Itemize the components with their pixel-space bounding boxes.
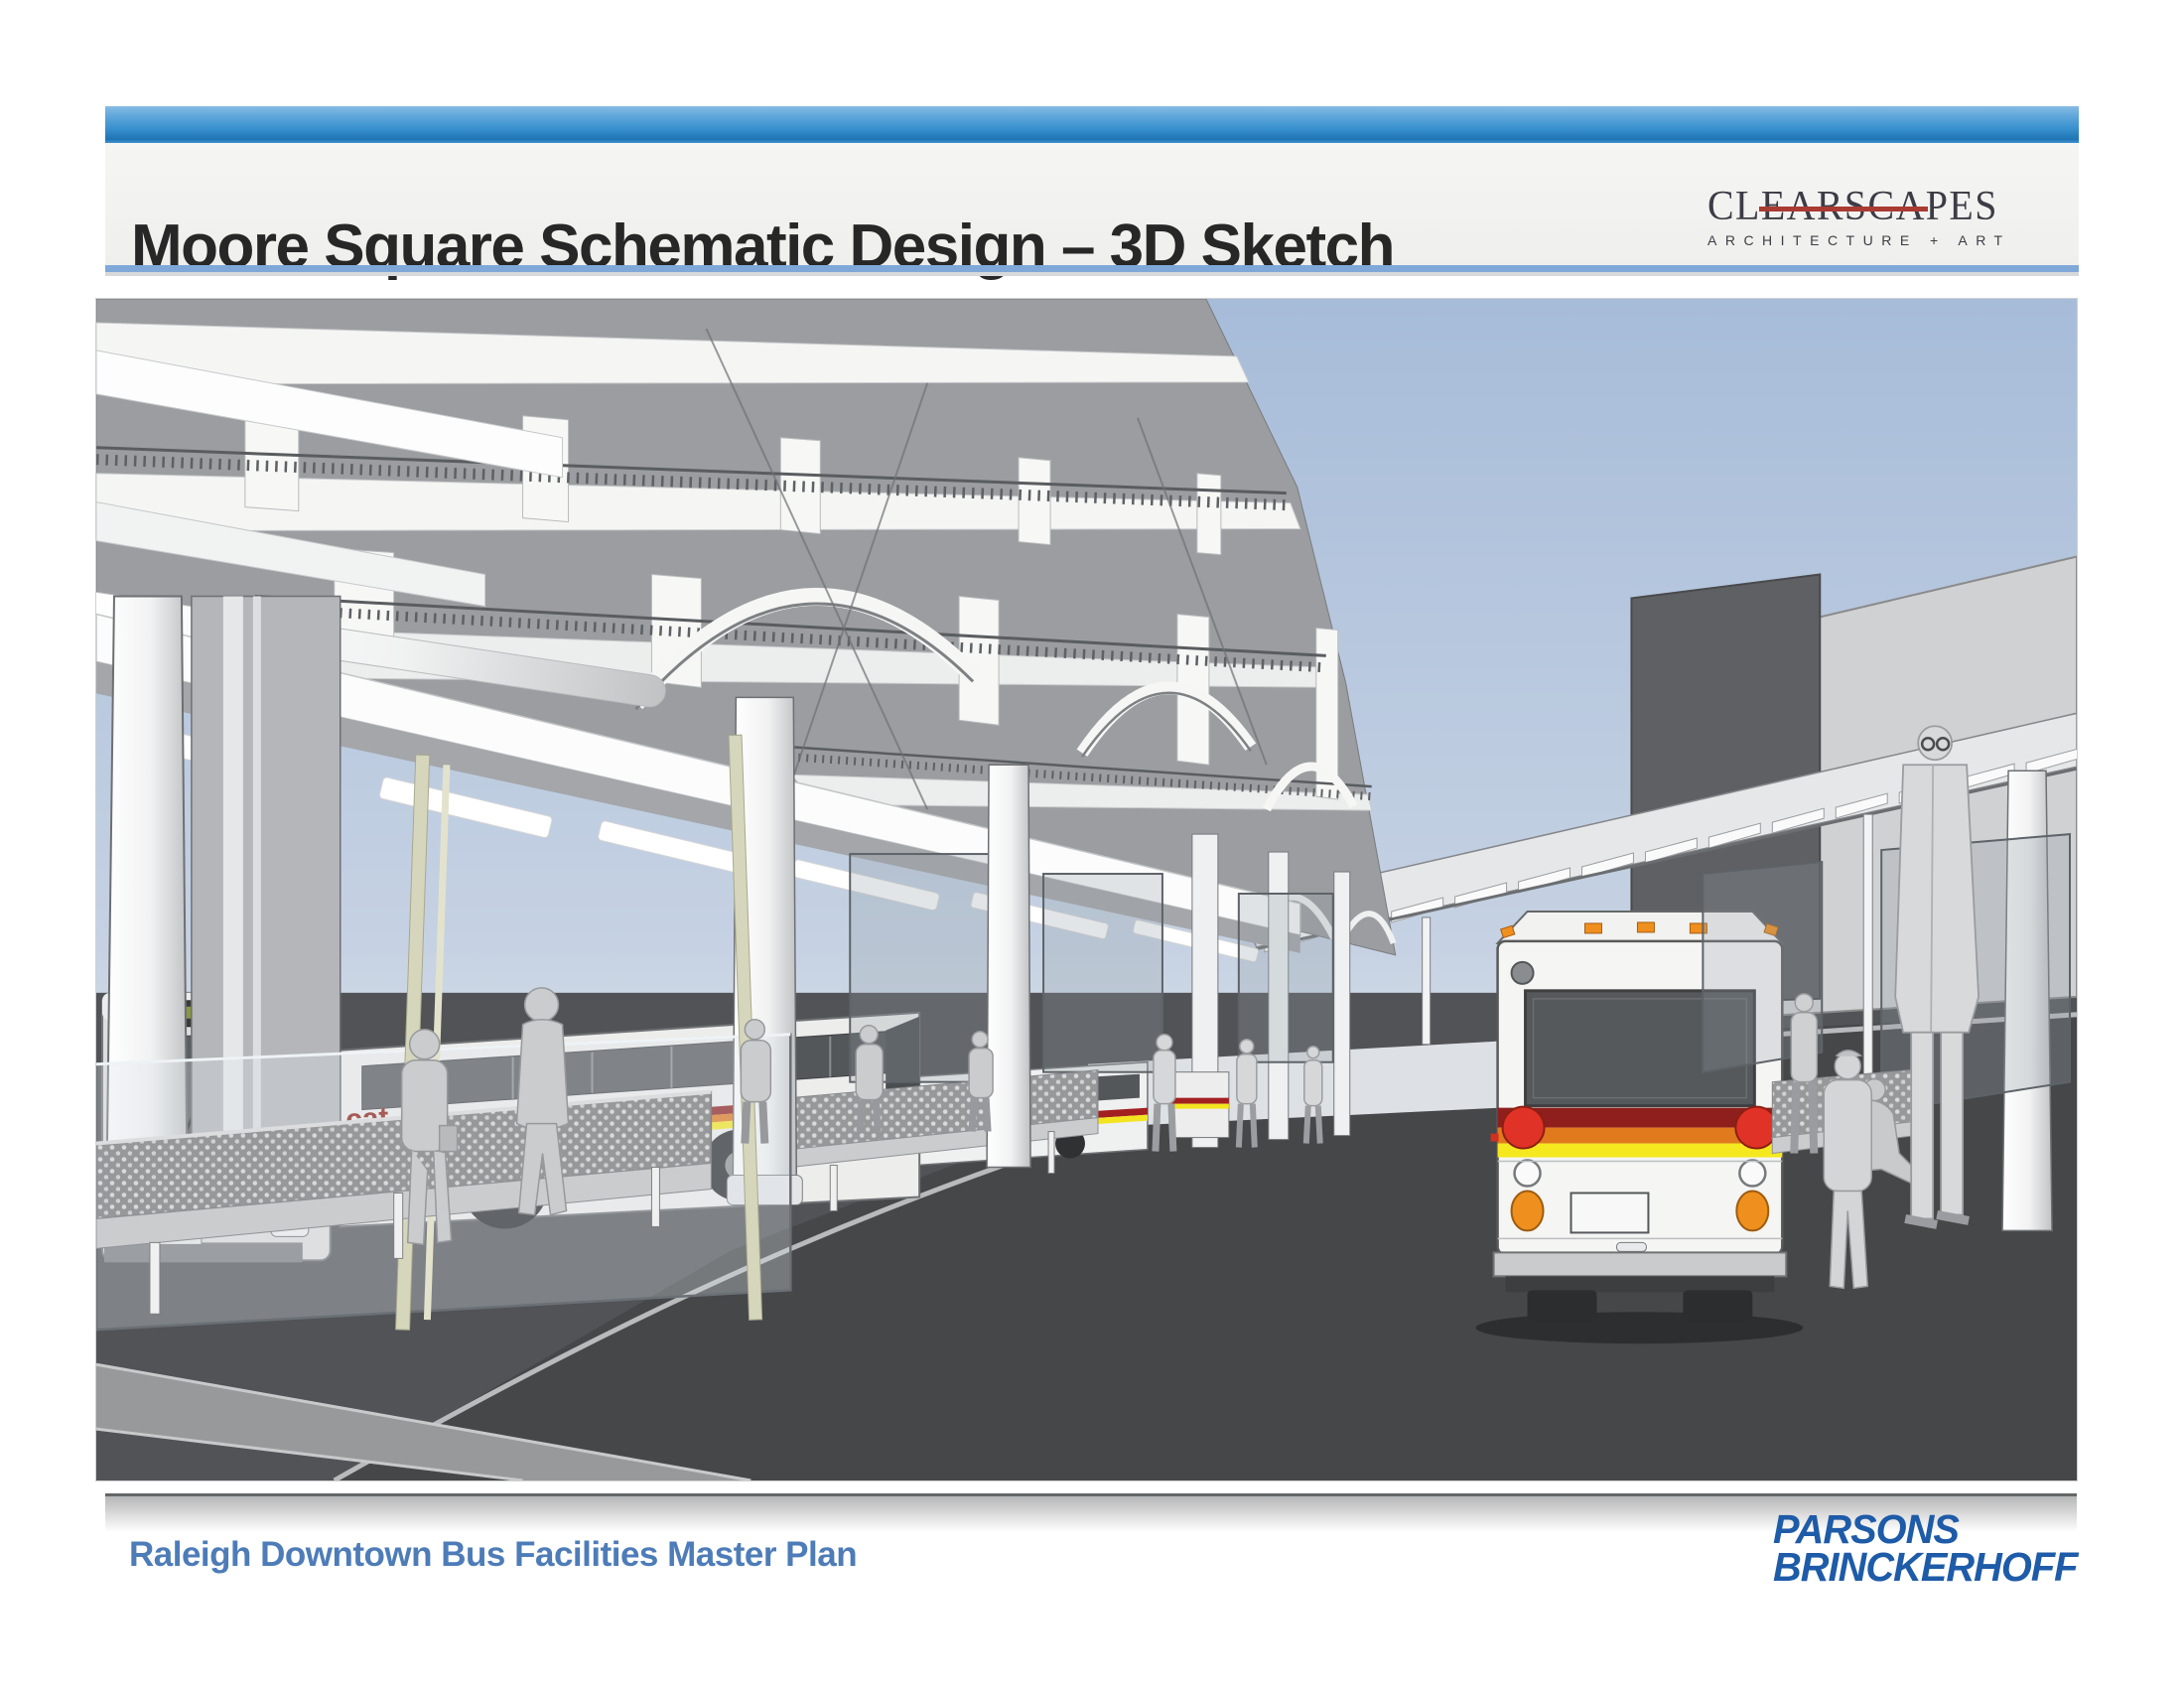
title-band: Moore Square Schematic Design – 3D Sketc…	[105, 143, 2079, 265]
sketch-scene: cat	[96, 299, 2077, 1480]
bus-shadow	[1476, 1312, 1804, 1343]
title-underline	[105, 265, 2079, 272]
footer-project-name: Raleigh Downtown Bus Facilities Master P…	[129, 1535, 857, 1575]
bus-bumper	[1494, 1252, 1787, 1276]
page-title: Moore Square Schematic Design – 3D Sketc…	[131, 185, 1394, 307]
bus-tail-light	[1735, 1107, 1777, 1149]
column-round	[987, 765, 1030, 1167]
parsons-brinckerhoff-logo: PARSONS BRINCKERHOFF	[1773, 1511, 2078, 1586]
parsons-logo-line2: BRINCKERHOFF	[1773, 1549, 2078, 1587]
canopy-pole	[1423, 917, 1431, 1045]
3d-sketch-image: cat	[95, 298, 2078, 1481]
clearscapes-tagline: ARCHITECTURE + ART	[1707, 232, 2005, 248]
bus-license-plate	[1571, 1193, 1649, 1232]
header-accent-bar	[105, 106, 2079, 143]
clearscapes-logo: CLEARSCAPES ARCHITECTURE + ART	[1707, 183, 2005, 248]
bus-distant-small	[1171, 1072, 1229, 1138]
bus-wheel	[1528, 1290, 1597, 1322]
title-underline-shadow	[105, 272, 2079, 276]
clearscapes-red-line	[1759, 207, 1928, 211]
bus-wheel	[1683, 1290, 1752, 1322]
bus-stripe-yellow	[1498, 1144, 1783, 1158]
bus-tail-light	[1503, 1107, 1545, 1149]
bus-emblem	[1512, 962, 1534, 984]
